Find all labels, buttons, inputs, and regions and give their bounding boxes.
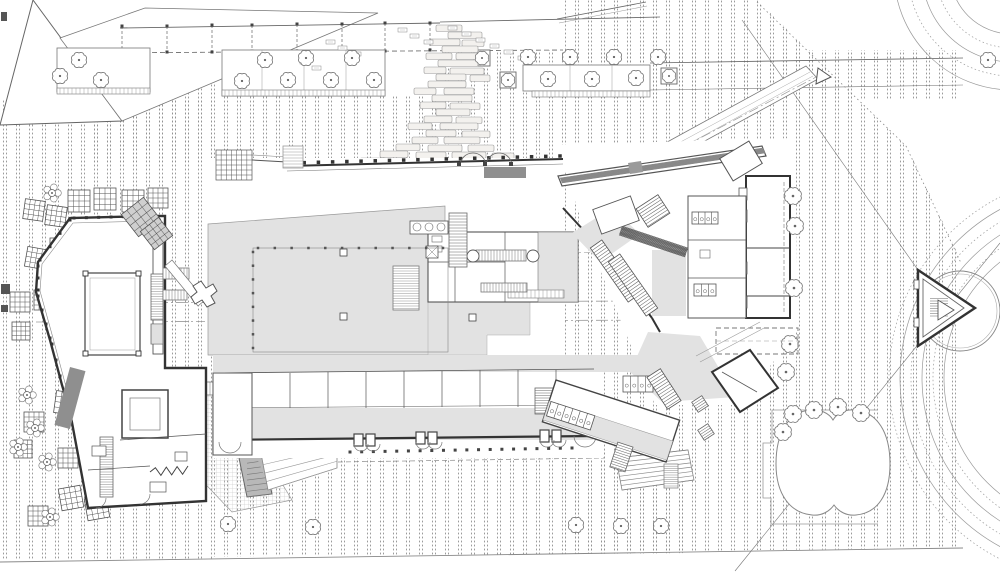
garden-table bbox=[94, 188, 116, 210]
garden-table bbox=[23, 199, 46, 222]
garden-table bbox=[58, 485, 83, 510]
garden-table bbox=[10, 292, 30, 312]
site-plan-drawing bbox=[0, 0, 1000, 572]
garden-table bbox=[12, 322, 30, 340]
floor-plan-canvas bbox=[0, 0, 1000, 572]
garden-table bbox=[68, 190, 90, 212]
garden-table bbox=[148, 188, 168, 208]
garden-table bbox=[58, 448, 78, 468]
garden-table bbox=[45, 205, 68, 228]
plan-layers bbox=[0, 0, 1000, 572]
